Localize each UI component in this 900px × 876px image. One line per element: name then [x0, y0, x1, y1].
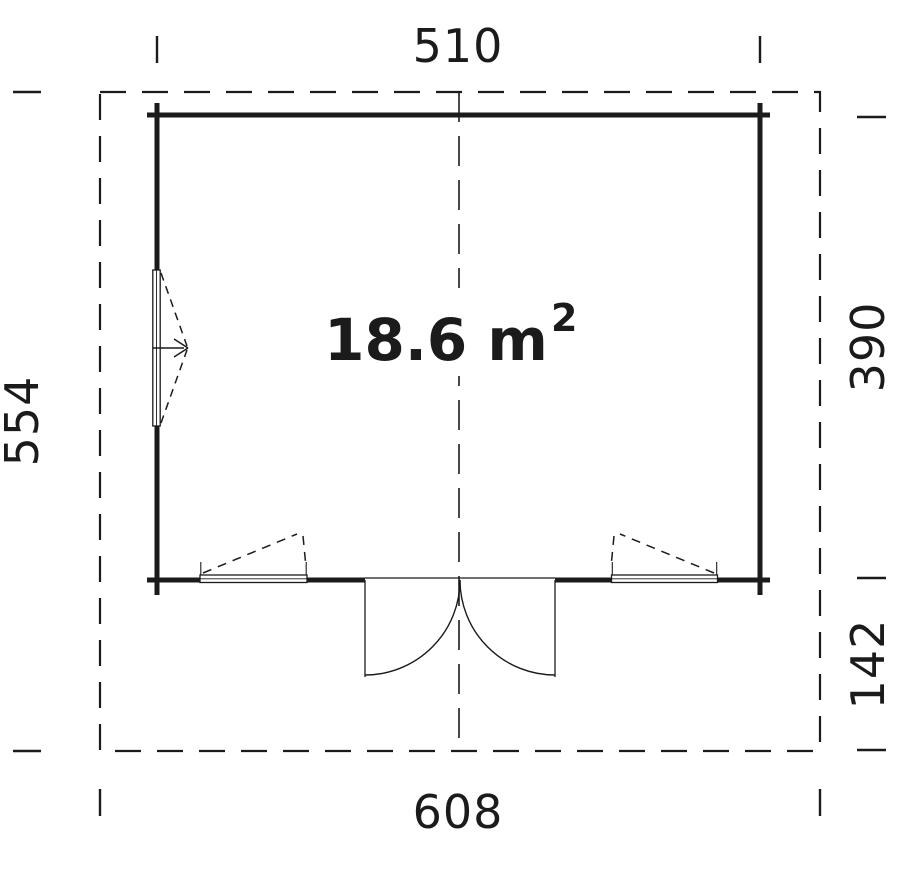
- window-bottom-left: [200, 534, 307, 583]
- area-label: 18.6 m: [324, 306, 548, 374]
- double-door: [365, 578, 555, 677]
- dimension-top-value: 510: [413, 19, 504, 73]
- window-bottom-right-swing-long: [620, 534, 714, 573]
- dimension-top: 510: [157, 19, 760, 73]
- door-swing-arc-left: [365, 580, 460, 675]
- dimension-right: 390 142: [841, 117, 895, 750]
- dimension-bottom: 608: [100, 785, 820, 839]
- window-left: [153, 270, 188, 426]
- window-bottom-right: [611, 534, 718, 583]
- window-bottom-left-swing-long: [203, 534, 297, 573]
- dimension-right-lower-value: 142: [841, 619, 895, 710]
- area-label-exponent: 2: [551, 296, 577, 340]
- dimension-right-upper-value: 390: [841, 302, 895, 393]
- window-left-swing-upper: [161, 273, 187, 346]
- dimension-bottom-value: 608: [413, 785, 504, 839]
- window-bottom-left-swing-short: [303, 536, 306, 567]
- dimension-left-value: 554: [0, 376, 49, 467]
- floor-plan-canvas: 18.6 m 2 510 608 554 390 142: [0, 0, 900, 876]
- roof-overhang-outline: [100, 92, 820, 751]
- window-left-swing-lower: [161, 350, 187, 423]
- floor-plan-svg: 18.6 m 2 510 608 554 390 142: [0, 0, 900, 876]
- door-swing-arc-right: [460, 580, 555, 675]
- dimension-left: 554: [0, 92, 49, 751]
